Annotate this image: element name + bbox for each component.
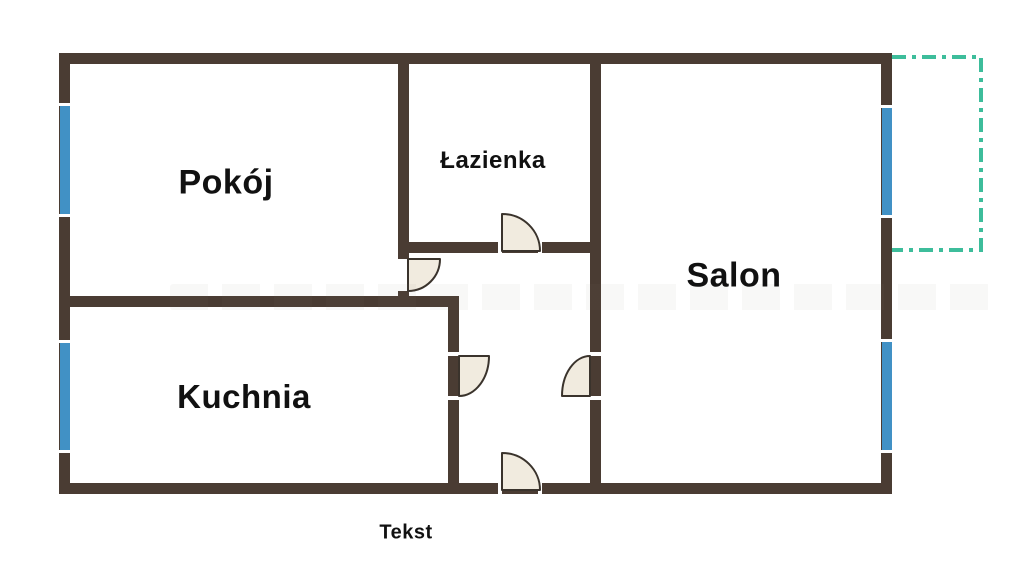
window-separator <box>881 450 892 453</box>
window-separator <box>59 214 70 217</box>
window-separator <box>59 340 70 343</box>
doors <box>408 214 590 490</box>
window-pokoj <box>60 106 70 214</box>
window-salon-bottom <box>882 342 892 450</box>
window-separator <box>881 215 892 218</box>
plan-caption: Tekst <box>379 522 432 545</box>
room-label-salon: Salon <box>686 257 781 296</box>
room-label-kuchnia: Kuchnia <box>177 378 311 416</box>
door-entrance <box>502 453 540 490</box>
floor-plan-drawing <box>0 0 1024 579</box>
wall-bottom <box>59 483 892 494</box>
window-separator <box>59 450 70 453</box>
hinge-notch <box>448 352 459 356</box>
window-separator <box>881 105 892 108</box>
hinge-notch <box>590 396 601 400</box>
room-label-pokoj: Pokój <box>178 164 273 203</box>
wall-pokoj-bottom <box>59 296 459 307</box>
window-separator <box>59 103 70 106</box>
wall-salon-left <box>590 53 601 494</box>
inner-walls <box>59 53 601 494</box>
window-salon-top <box>882 108 892 215</box>
hinge-notch <box>448 396 459 400</box>
floor-plan: Pokój Łazienka Salon Kuchnia Tekst <box>0 0 1024 579</box>
door-salon <box>562 356 590 396</box>
wall-hall-left <box>448 296 459 494</box>
balcony-outline <box>892 57 981 250</box>
door-pokoj <box>408 259 440 291</box>
wall-top <box>59 53 892 64</box>
door-kuchnia <box>459 356 489 396</box>
room-label-lazienka: Łazienka <box>440 147 545 175</box>
hinge-notch <box>590 352 601 356</box>
window-kuchnia <box>60 343 70 450</box>
window-separator <box>881 339 892 342</box>
door-lazienka <box>502 214 540 251</box>
